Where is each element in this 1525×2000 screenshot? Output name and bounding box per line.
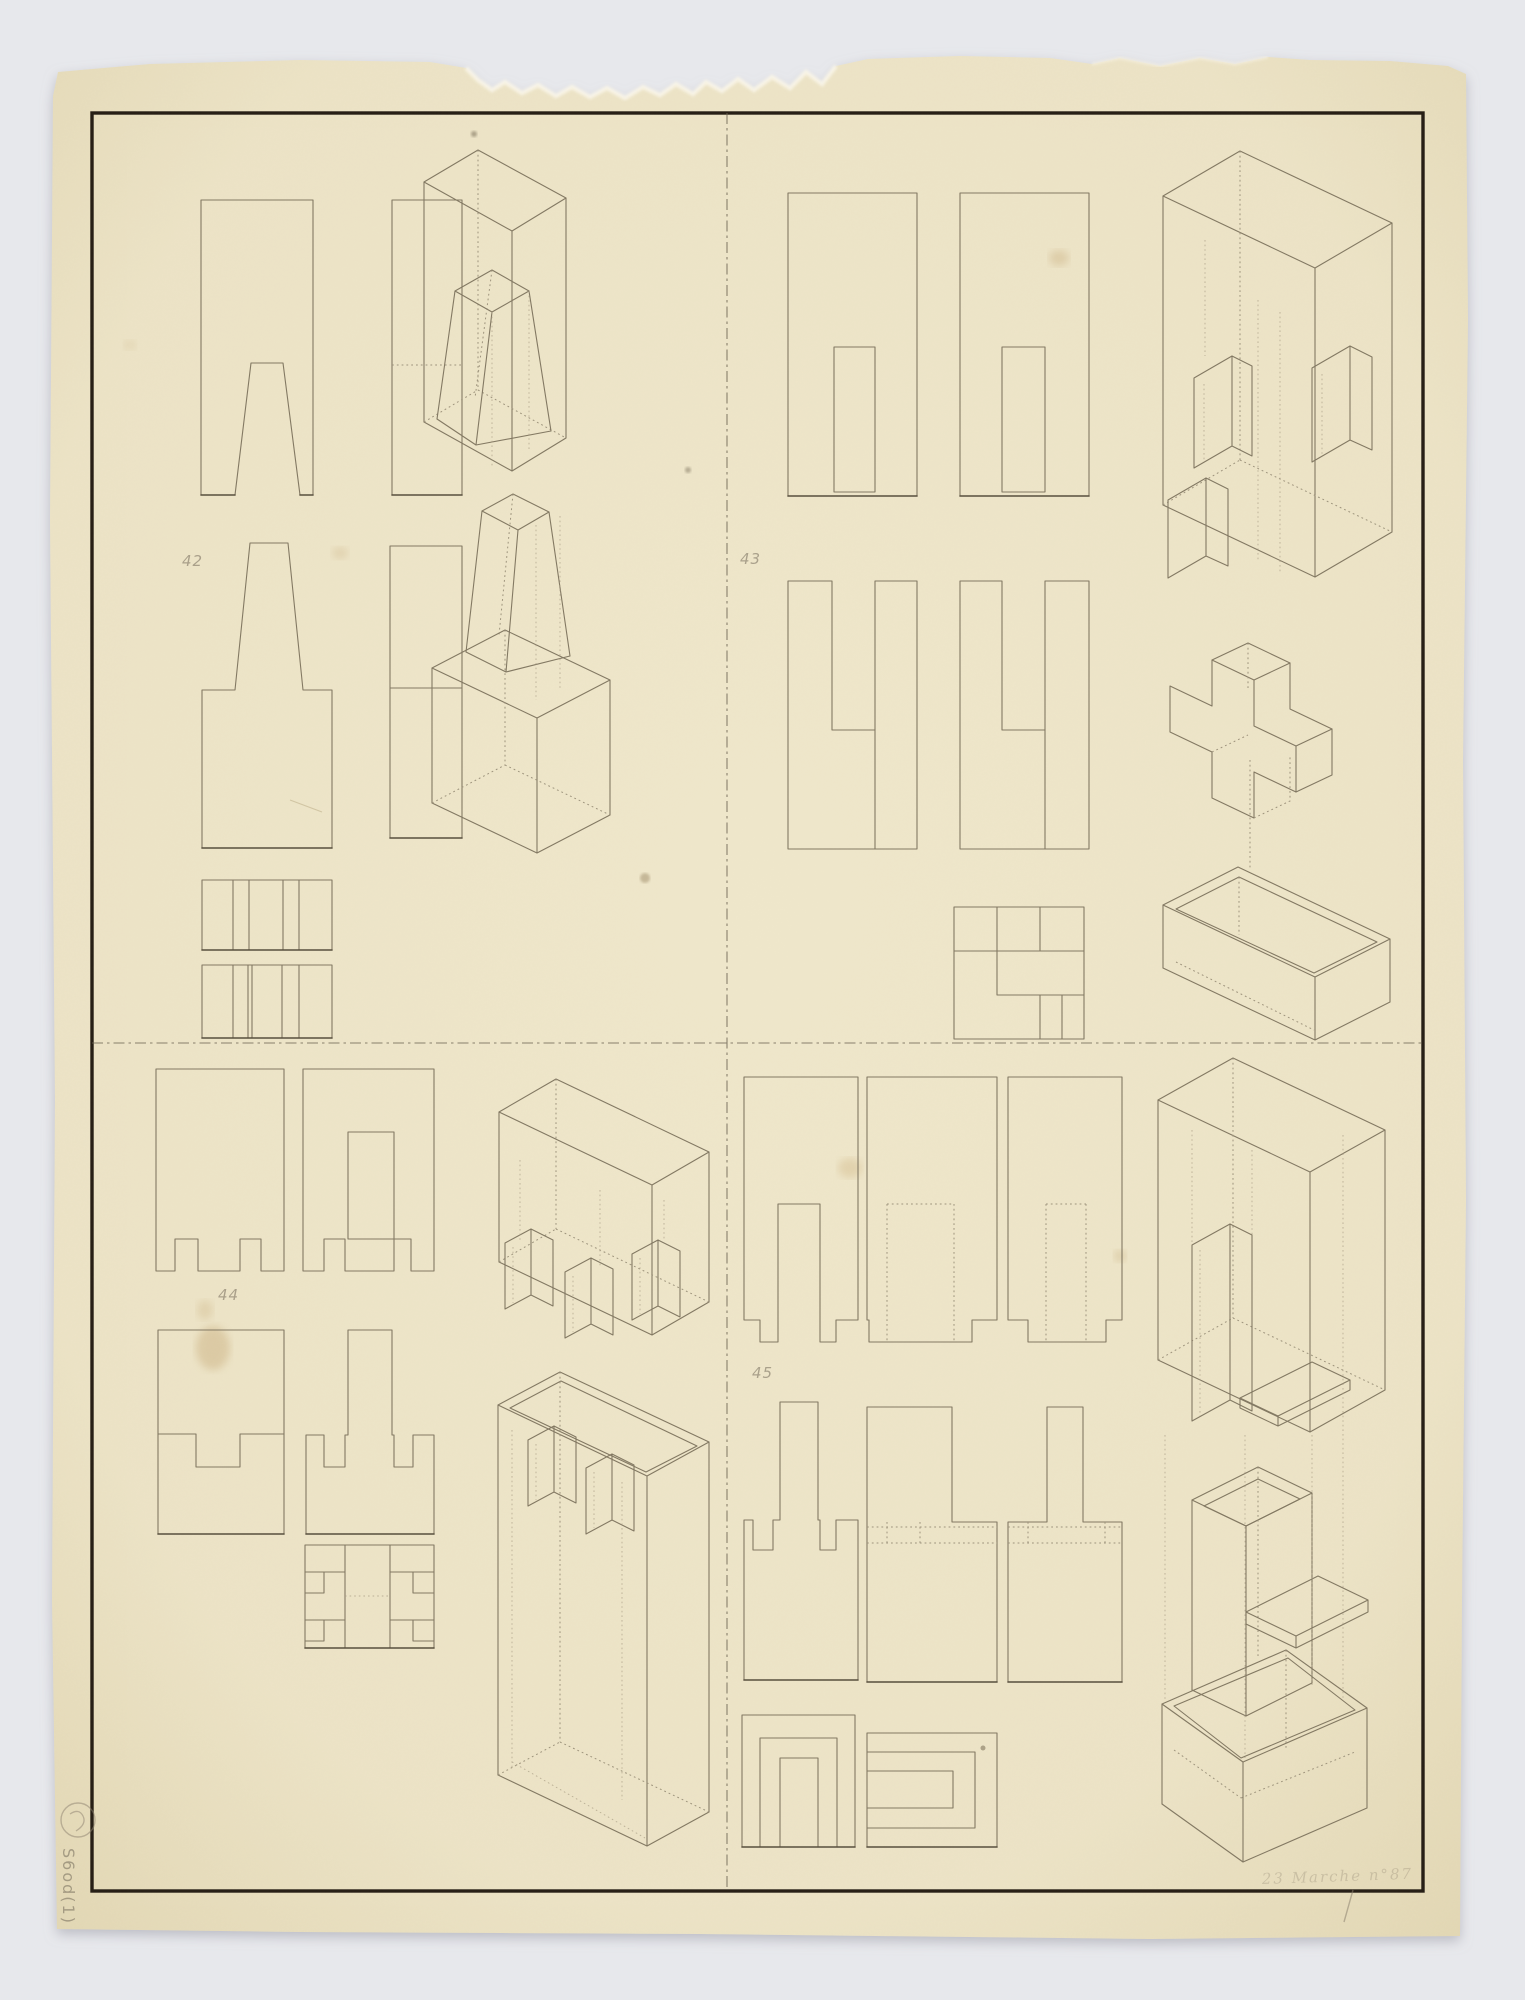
drawing-plate-svg: 42 (0, 0, 1525, 2000)
paper-grain-texture (40, 40, 1480, 1960)
scanned-drawing-sheet: 42 (0, 0, 1525, 2000)
